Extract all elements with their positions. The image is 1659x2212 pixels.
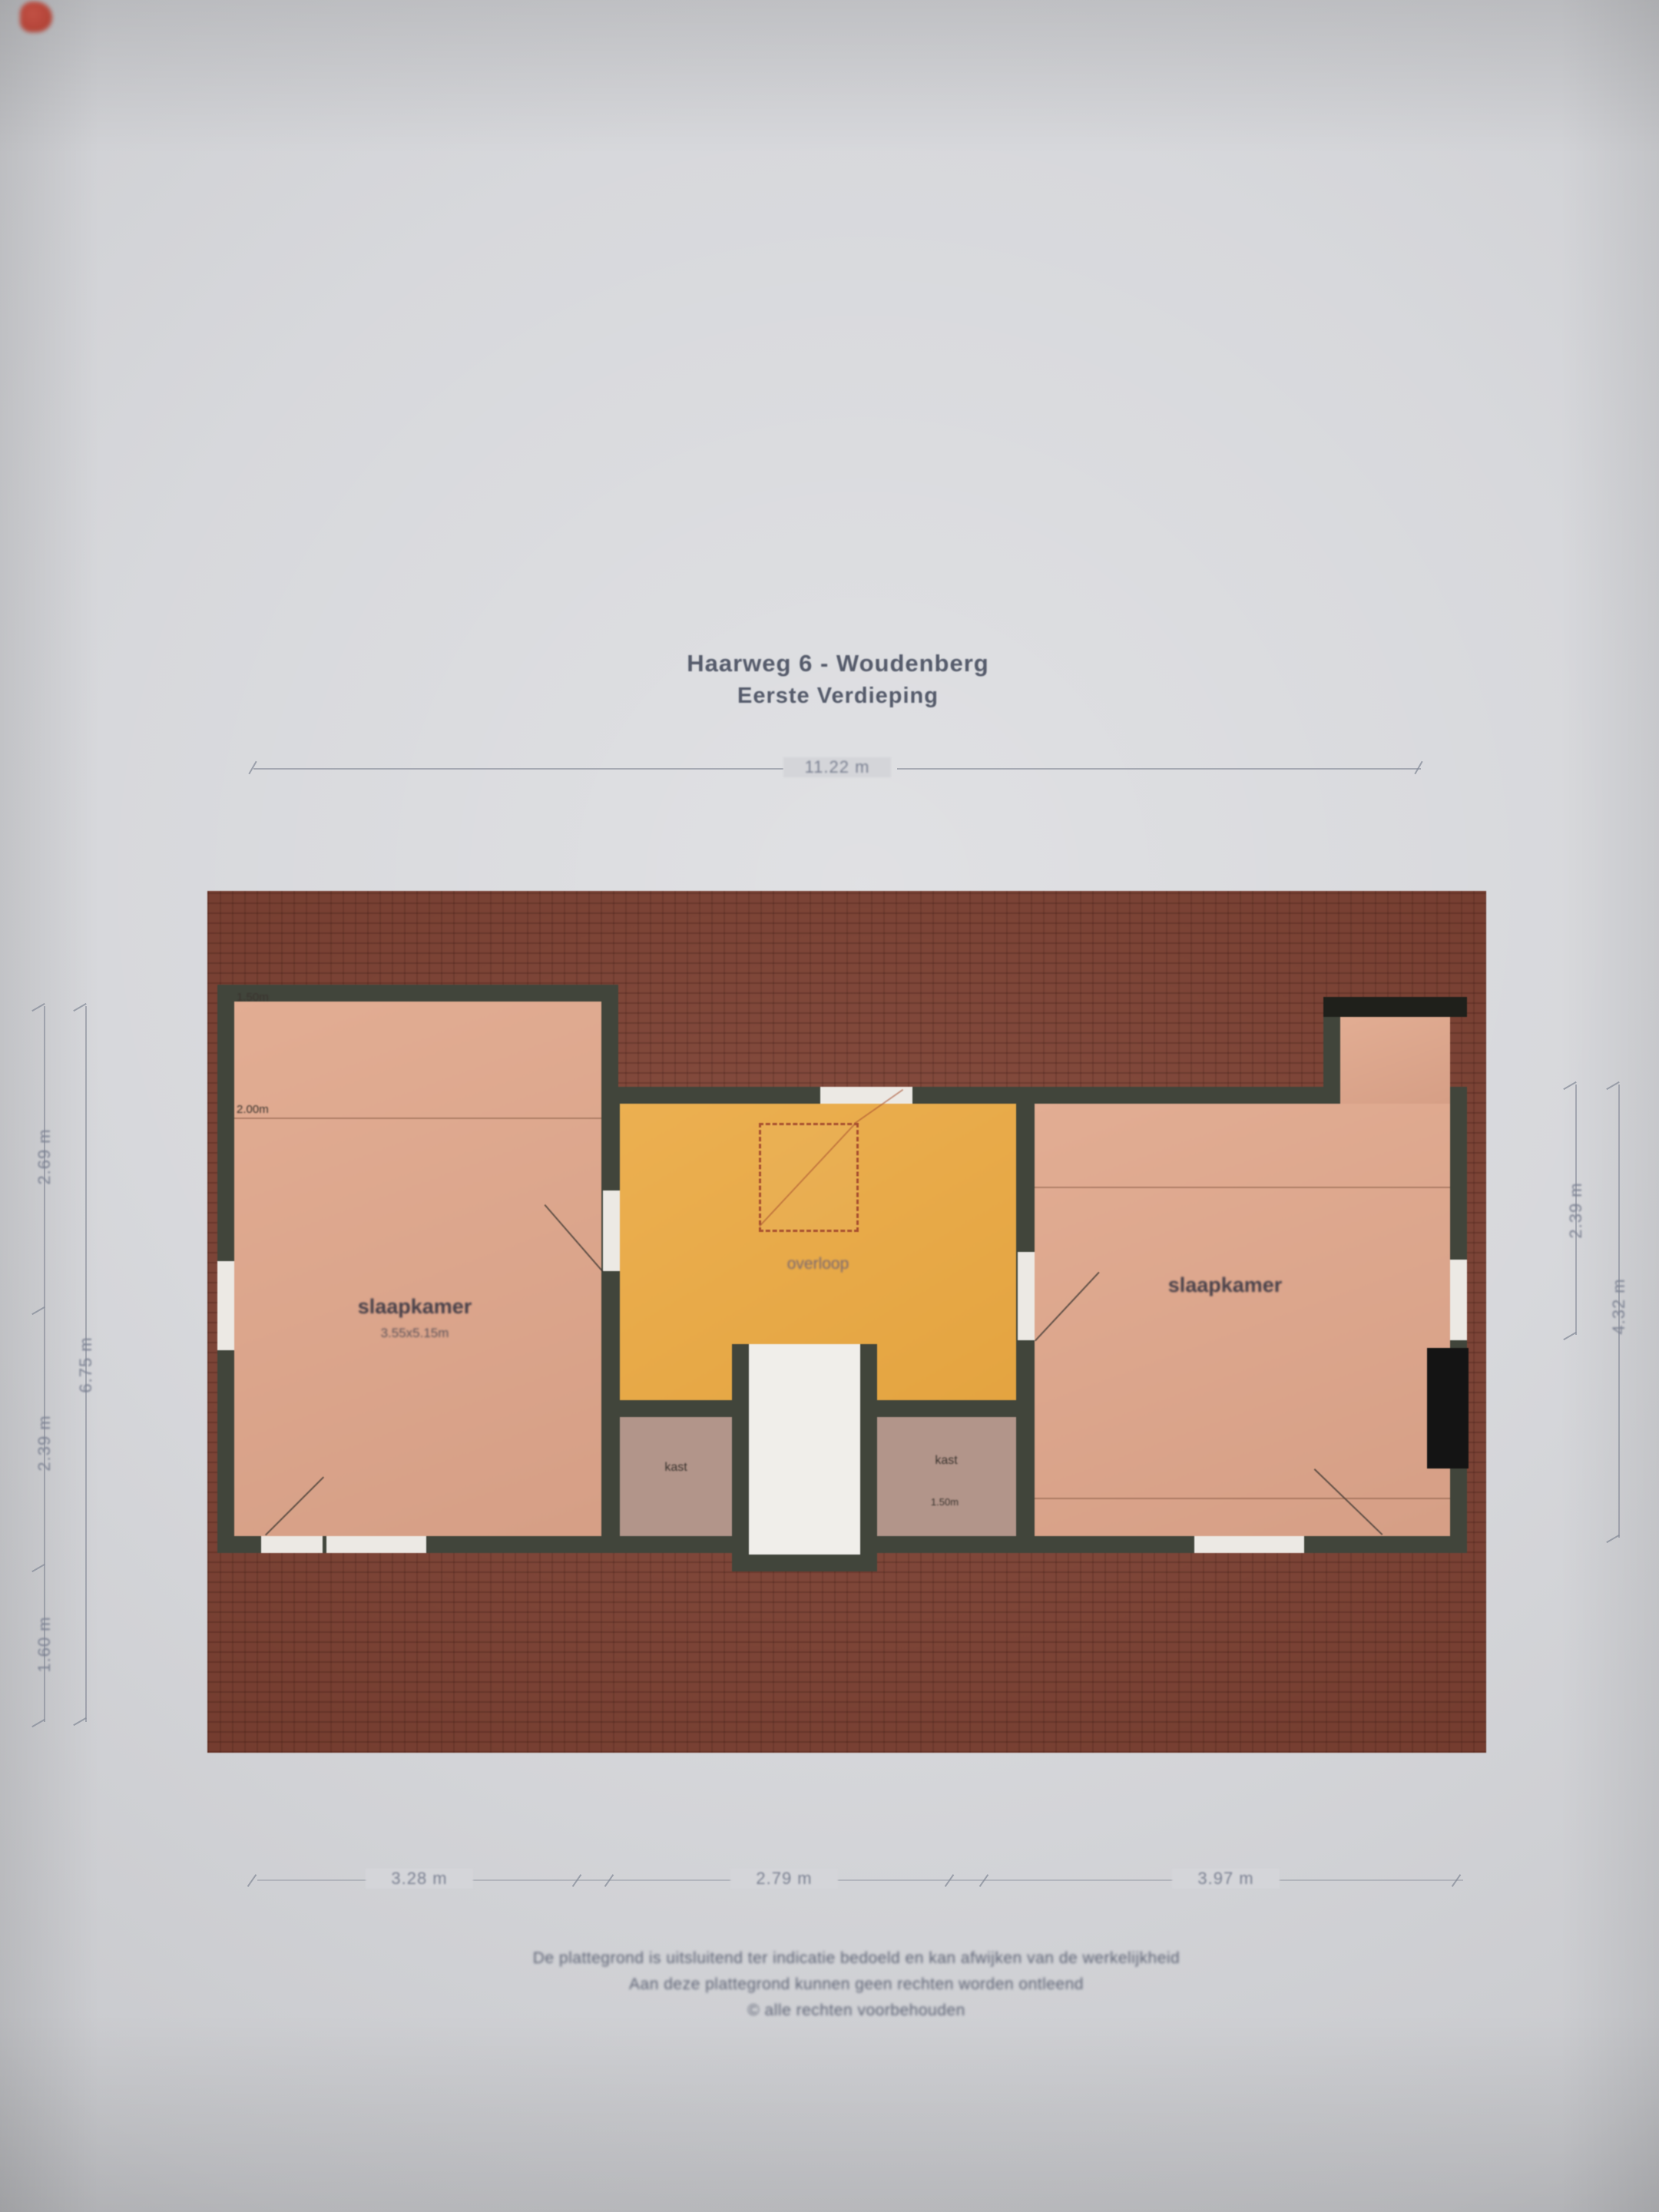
- left-segment-dimension-2: 2.39 m: [35, 1389, 55, 1497]
- red-ink-smudge: [20, 2, 52, 32]
- height-line-right-room-top: [1035, 1187, 1450, 1188]
- left-wall-window: [217, 1261, 234, 1350]
- right-closet-floor: [877, 1417, 1016, 1536]
- bottom-dimension-2: 2.79 m: [730, 1869, 838, 1889]
- bottom-dimension-1: 3.28 m: [366, 1869, 473, 1889]
- floor-subtitle: Eerste Verdieping: [0, 684, 1659, 709]
- top-dimension-line-left: [253, 768, 783, 770]
- left-bottom-door-opening: [261, 1536, 323, 1553]
- height-line-right-room-bottom: [1035, 1498, 1450, 1499]
- right-bedroom-floor: [1035, 1104, 1450, 1536]
- disclaimer-line-2: Aan deze plattegrond kunnen geen rechten…: [0, 1975, 1659, 1994]
- left-closet-wall: [620, 1400, 732, 1417]
- right-bedroom-label: slaapkamer: [1110, 1273, 1340, 1297]
- left-bedroom-door-opening: [603, 1190, 620, 1271]
- right-inner-dimension: 2.39 m: [1566, 1157, 1586, 1264]
- top-width-dimension: 11.22 m: [783, 757, 891, 777]
- height-line-left-room: [234, 1118, 601, 1119]
- right-outer-dimension: 4.32 m: [1609, 1253, 1629, 1360]
- skylight-dashed-outline: [759, 1123, 859, 1232]
- right-closet-label: kast: [885, 1454, 1008, 1468]
- right-bedroom-door-opening: [1018, 1252, 1035, 1340]
- floorplan: 1.50m 2.00m slaapkamer 3.55x5.15m slaapk…: [207, 891, 1486, 1753]
- dormer-side-wall: [1323, 1017, 1340, 1104]
- stairwell: [749, 1344, 860, 1555]
- left-bottom-window: [326, 1536, 426, 1553]
- left-bedroom-label: slaapkamer: [300, 1295, 530, 1319]
- scanned-floorplan-page: { "doc": { "title_line1": "Haarweg 6 - W…: [0, 0, 1659, 2212]
- height-line-label-mid: 2.00m: [237, 1103, 269, 1116]
- right-closet-note: 1.50m: [899, 1496, 991, 1508]
- document-title: Haarweg 6 - Woudenberg: [0, 650, 1659, 677]
- left-bedroom-size: 3.55x5.15m: [300, 1326, 530, 1341]
- left-closet-label: kast: [637, 1461, 714, 1475]
- left-bedroom-floor: [234, 1002, 601, 1536]
- landing-label: overloop: [741, 1255, 895, 1273]
- left-closet-floor: [620, 1417, 732, 1536]
- height-line-label-top: 1.50m: [237, 991, 269, 1004]
- dormer-front-wall: [1323, 997, 1467, 1017]
- top-dimension-line-right: [897, 768, 1421, 770]
- landing-top-window: [820, 1087, 912, 1104]
- left-segment-dimension-1: 2.69 m: [35, 1103, 55, 1210]
- bottom-dimension-3: 3.97 m: [1172, 1869, 1280, 1889]
- right-bottom-window: [1194, 1536, 1304, 1553]
- left-total-dimension: 6.75 m: [76, 1311, 96, 1419]
- disclaimer-line-1: De plattegrond is uitsluitend ter indica…: [0, 1949, 1659, 1968]
- disclaimer-line-3: © alle rechten voorbehouden: [0, 2002, 1659, 2020]
- left-segment-dimension-3: 1.60 m: [35, 1591, 55, 1698]
- dormer-floor: [1340, 1017, 1450, 1104]
- right-wall-window: [1450, 1260, 1467, 1340]
- chimney-block: [1427, 1348, 1469, 1469]
- right-closet-wall: [877, 1400, 1016, 1417]
